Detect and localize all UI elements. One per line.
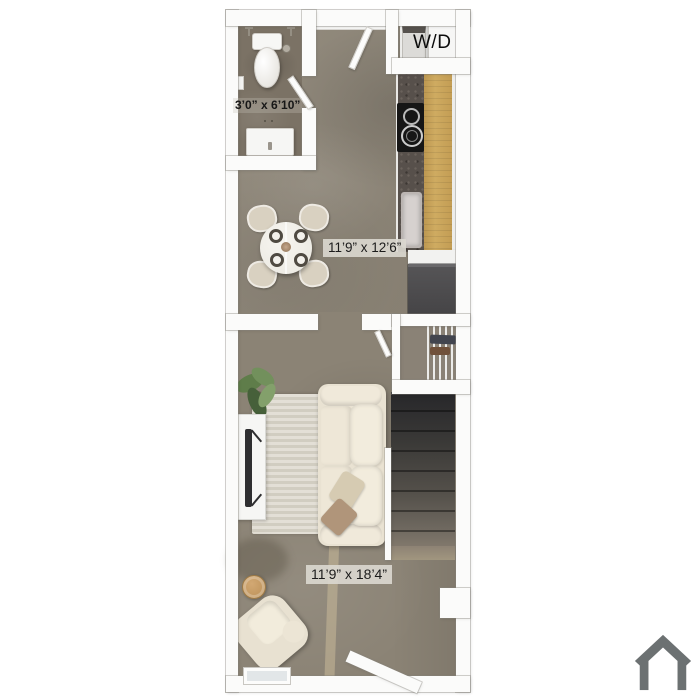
dining-dimensions-label: 11’9” x 12’6”: [323, 239, 406, 257]
stair-landing: [391, 546, 455, 560]
bathroom-dimensions-label: 3’0” x 6’10”: [233, 98, 302, 113]
house-logo-icon: [632, 630, 694, 692]
place-setting: [269, 229, 283, 243]
vanity-handles: [264, 120, 266, 122]
staircase: [391, 392, 455, 558]
table-centerpiece: [281, 242, 291, 252]
counter-end-panel: [408, 250, 460, 264]
place-setting: [294, 229, 308, 243]
tv: [245, 429, 252, 507]
living-dimensions-label: 11’9” x 18’4”: [306, 565, 392, 584]
faucet-icon: [268, 142, 272, 150]
closet-wall-top: [392, 314, 470, 326]
towel-hook-icon: [287, 27, 295, 36]
place-setting: [294, 253, 308, 267]
window-pane: [247, 671, 287, 681]
tv-stand-leg: [251, 494, 262, 507]
bathroom-wall-right-upper: [302, 10, 316, 76]
wall-niche: [440, 588, 470, 618]
bathroom-wall-bottom: [226, 156, 316, 170]
closet-wall-bottom: [392, 380, 470, 394]
closet-items: [430, 335, 456, 345]
sofa-seat-cushion: [321, 406, 352, 466]
cooktop: [397, 103, 424, 152]
closet-wall-left: [392, 314, 400, 388]
sofa-armrest: [320, 386, 382, 406]
place-setting: [270, 253, 284, 267]
closet-items: [430, 347, 450, 355]
laundry-wall-bottom: [392, 58, 470, 74]
sofa: [318, 384, 386, 546]
wall-top: [226, 10, 470, 26]
toilet: [254, 47, 280, 88]
bathroom-sink: [246, 128, 294, 156]
washer-dryer-label: W/D: [408, 31, 456, 55]
floor-drain: [282, 44, 291, 53]
stair-railing: [385, 448, 391, 560]
partition-wall-right: [362, 314, 396, 330]
breakfast-bar-counter: [424, 74, 452, 252]
living-room-window: [244, 668, 290, 684]
refrigerator: [408, 264, 462, 316]
partition-wall-left: [226, 314, 318, 330]
tv-stand-leg: [251, 430, 262, 443]
floor-plan-canvas: 3’0” x 6’10” 11’9” x 12’6” 11’9” x 18’4”…: [0, 0, 700, 700]
sofa-back-cushion: [350, 404, 382, 466]
